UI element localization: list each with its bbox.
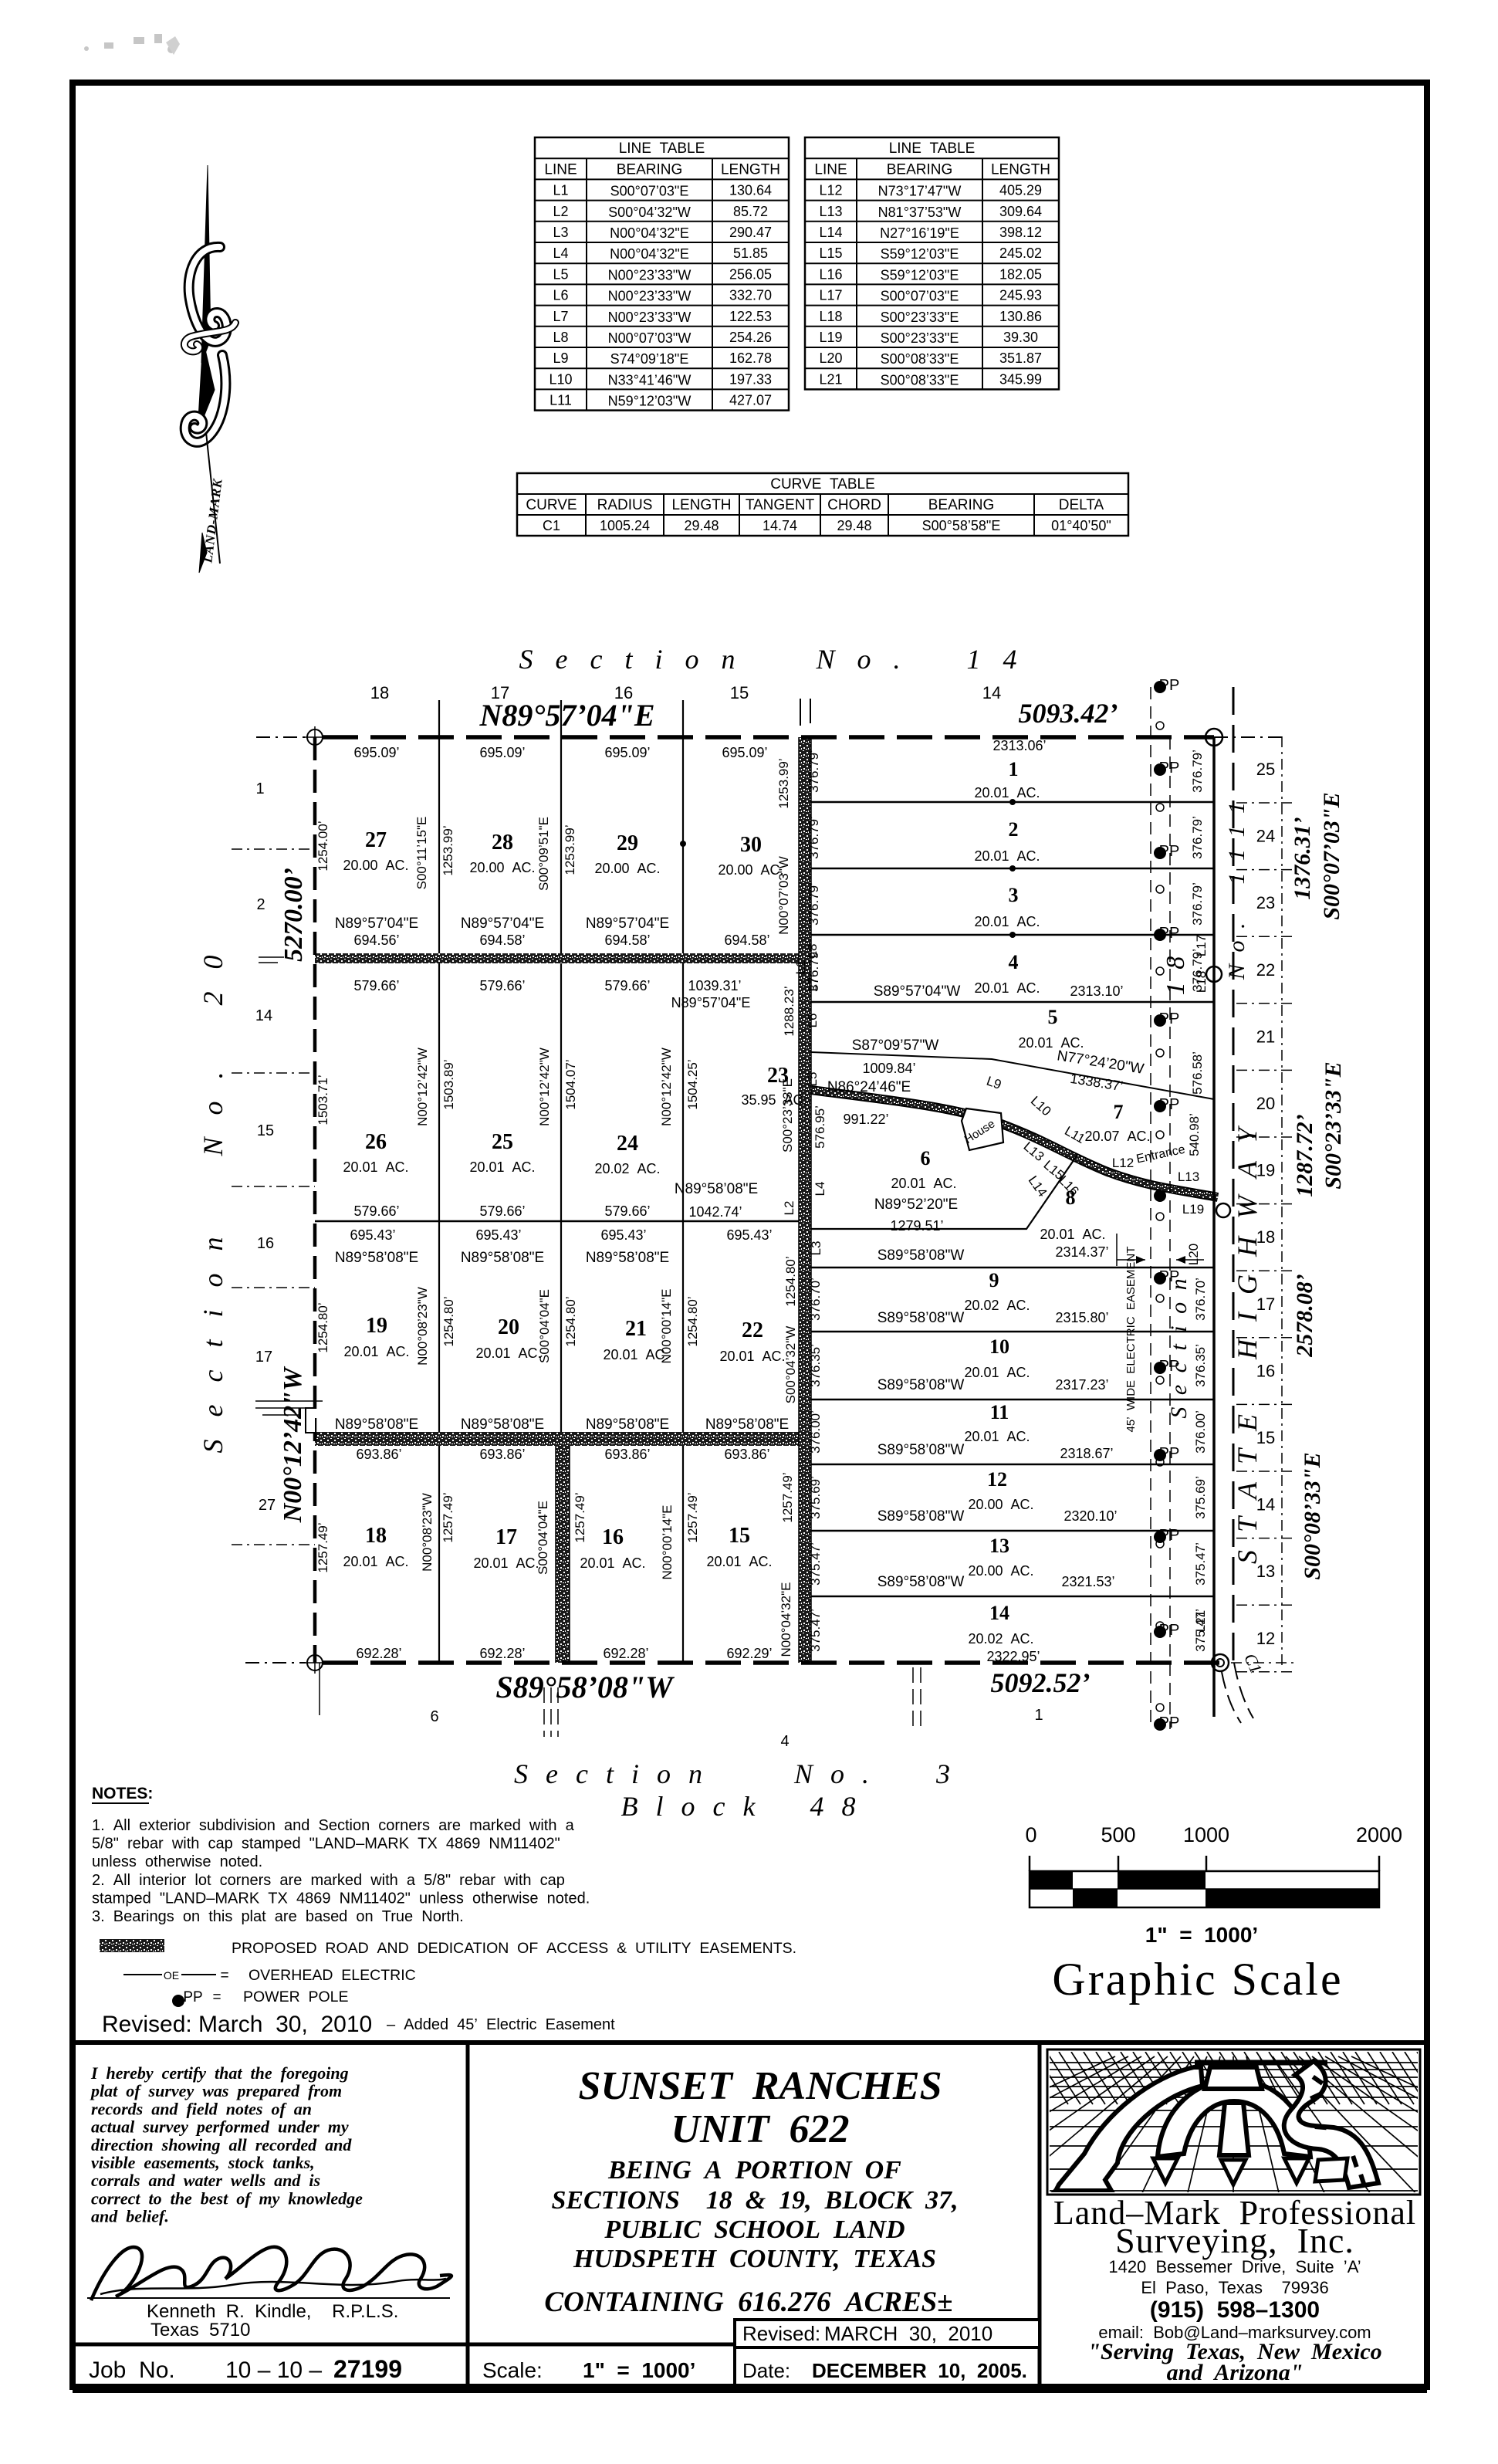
svg-text:3. Bearings on this plat: 3. Bearings on this plat are based on Tr…: [92, 1908, 464, 1925]
svg-text:S89°57’04"W: S89°57’04"W: [874, 983, 961, 1000]
svg-text:S89°58’08"W: S89°58’08"W: [877, 1310, 965, 1326]
svg-text:695.43’: 695.43’: [350, 1227, 395, 1243]
svg-text:corrals and water wells an: corrals and water wells and is: [91, 2171, 320, 2190]
svg-text:376.00’: 376.00’: [1193, 1410, 1208, 1454]
svg-text:579.66’: 579.66’: [353, 1203, 399, 1219]
svg-text:1376.31’: 1376.31’: [1290, 817, 1315, 900]
svg-text:20.01 AC.: 20.01 AC.: [719, 1349, 785, 1364]
svg-text:692.28’: 692.28’: [603, 1646, 648, 1661]
svg-text:692.28’: 692.28’: [479, 1646, 525, 1661]
svg-text:692.28’: 692.28’: [356, 1646, 401, 1661]
svg-text:694.58’: 694.58’: [604, 932, 650, 948]
svg-text:S00°07’03"E: S00°07’03"E: [1319, 792, 1344, 919]
svg-text:L1: L1: [553, 183, 568, 198]
svg-text:L20: L20: [819, 350, 842, 366]
svg-text:398.12: 398.12: [999, 225, 1042, 240]
svg-text:L5: L5: [553, 266, 568, 282]
svg-text:17: 17: [491, 683, 509, 702]
svg-text:20.01 AC.: 20.01 AC.: [964, 1429, 1030, 1444]
svg-text:N89°57’04"E: N89°57’04"E: [335, 916, 418, 932]
svg-text:12: 12: [1256, 1629, 1275, 1648]
svg-text:C1: C1: [543, 518, 560, 533]
svg-text:S e c t i o n N o .: S e c t i o n N o . 3: [514, 1758, 955, 1789]
svg-text:1257.49’: 1257.49’: [780, 1472, 795, 1522]
svg-text:376.70’: 376.70’: [1193, 1278, 1208, 1321]
svg-text:L4: L4: [553, 245, 568, 261]
svg-text:1504.07’: 1504.07’: [563, 1059, 578, 1109]
svg-text:500: 500: [1101, 1823, 1135, 1846]
svg-text:PP: PP: [1159, 677, 1180, 694]
svg-text:UNIT 622: UNIT 622: [671, 2107, 849, 2151]
svg-text:576.58’: 576.58’: [1190, 1051, 1205, 1095]
svg-text:PP: PP: [1159, 925, 1180, 942]
svg-text:695.09’: 695.09’: [604, 745, 650, 760]
svg-text:S59°12’03"E: S59°12’03"E: [881, 246, 959, 262]
svg-text:375.69’: 375.69’: [1193, 1476, 1208, 1519]
svg-text:1288.23’: 1288.23’: [782, 986, 796, 1036]
svg-text:24: 24: [1256, 827, 1275, 846]
svg-text:692.29’: 692.29’: [726, 1646, 772, 1661]
svg-text:N89°58’08"E: N89°58’08"E: [586, 1416, 669, 1433]
svg-text:1257.49’: 1257.49’: [573, 1492, 587, 1542]
svg-text:S89°58’08"W: S89°58’08"W: [877, 1377, 965, 1393]
svg-text:1: 1: [255, 780, 264, 797]
svg-text:1254.80’: 1254.80’: [563, 1296, 578, 1346]
svg-text:LENGTH: LENGTH: [991, 161, 1050, 178]
svg-text:39.30: 39.30: [1003, 330, 1038, 345]
svg-text:376.79’: 376.79’: [1190, 750, 1205, 793]
svg-text:S89°58’08"W: S89°58’08"W: [495, 1670, 675, 1704]
svg-text:245.02: 245.02: [999, 245, 1042, 261]
svg-text:OE: OE: [164, 1969, 179, 1982]
svg-text:L2: L2: [782, 1201, 796, 1216]
svg-text:stamped "LAND–MARK TX 4869: stamped "LAND–MARK TX 4869 NM11402" unle…: [92, 1890, 590, 1907]
svg-text:2314.37’: 2314.37’: [1055, 1244, 1108, 1260]
svg-text:plat of survey was prepare: plat of survey was prepared from: [90, 2081, 342, 2100]
svg-text:L6: L6: [805, 1014, 820, 1028]
svg-text:SECTIONS 18 & 19, BLOCK: SECTIONS 18 & 19, BLOCK 37,: [551, 2186, 958, 2215]
svg-text:579.66’: 579.66’: [353, 978, 399, 993]
svg-text:20.00 AC.: 20.00 AC.: [469, 860, 535, 875]
svg-text:17: 17: [495, 1525, 517, 1549]
svg-text:Scale:: Scale:: [482, 2358, 543, 2382]
svg-text:579.66’: 579.66’: [479, 978, 525, 993]
svg-text:N00°07’03"W: N00°07’03"W: [608, 330, 692, 346]
svg-text:1254.80’: 1254.80’: [316, 1302, 330, 1352]
svg-text:Job No.: Job No.: [89, 2357, 175, 2383]
svg-text:376.79’: 376.79’: [1190, 816, 1205, 859]
svg-text:L13: L13: [1178, 1169, 1199, 1184]
svg-text:N00°00’14"E: N00°00’14"E: [659, 1289, 674, 1364]
svg-text:15: 15: [729, 1524, 750, 1548]
svg-text:L17: L17: [819, 288, 842, 303]
svg-text:visible easements, stock ta: visible easements, stock tanks,: [91, 2153, 315, 2172]
svg-text:N73°17’47"W: N73°17’47"W: [878, 184, 962, 199]
svg-text:21: 21: [1256, 1027, 1275, 1046]
svg-text:S00°23’33"E: S00°23’33"E: [1320, 1061, 1346, 1189]
svg-text:N89°58’08"E: N89°58’08"E: [335, 1250, 418, 1266]
svg-text:L11: L11: [549, 393, 572, 408]
svg-text:2318.67’: 2318.67’: [1060, 1446, 1113, 1461]
svg-text:0: 0: [1025, 1823, 1036, 1846]
svg-text:85.72: 85.72: [733, 204, 768, 219]
svg-text:CONTAINING 616.276 ACRES±: CONTAINING 616.276 ACRES±: [544, 2286, 952, 2318]
svg-text:694.58’: 694.58’: [479, 932, 525, 948]
svg-text:BEING A PORTION OF: BEING A PORTION OF: [607, 2156, 901, 2185]
svg-text:=: =: [220, 1968, 228, 1984]
svg-text:14: 14: [982, 683, 1001, 702]
svg-text:1005.24: 1005.24: [600, 518, 650, 533]
svg-text:L12: L12: [819, 183, 842, 198]
svg-text:20.01 AC.: 20.01 AC.: [343, 1344, 409, 1359]
svg-text:S00°23’33"E: S00°23’33"E: [780, 1078, 795, 1152]
svg-text:254.26: 254.26: [729, 330, 772, 345]
svg-text:14.74: 14.74: [763, 518, 797, 533]
svg-text:N00°23’33"W: N00°23’33"W: [608, 267, 692, 283]
svg-text:345.99: 345.99: [999, 371, 1042, 387]
svg-text:2320.10’: 2320.10’: [1063, 1508, 1117, 1524]
svg-text:MARCH 30, 2010: MARCH 30, 2010: [824, 2322, 992, 2345]
svg-text:LINE: LINE: [814, 161, 847, 178]
svg-text:20.01 AC.: 20.01 AC.: [706, 1554, 772, 1569]
svg-text:9: 9: [989, 1269, 999, 1291]
svg-text:22: 22: [1256, 960, 1275, 980]
svg-text:2000: 2000: [1356, 1823, 1402, 1846]
svg-text:N00°07’03"W: N00°07’03"W: [776, 856, 791, 935]
svg-text:=: =: [212, 1989, 221, 2005]
svg-text:N00°08’23"W: N00°08’23"W: [420, 1493, 435, 1572]
svg-text:695.43’: 695.43’: [726, 1227, 772, 1243]
svg-text:19: 19: [366, 1314, 387, 1338]
svg-text:21: 21: [625, 1317, 647, 1341]
svg-text:DELTA: DELTA: [1059, 497, 1104, 513]
svg-text:N89°58’08"E: N89°58’08"E: [705, 1416, 789, 1433]
svg-text:(915) 598–1300: (915) 598–1300: [1150, 2297, 1320, 2323]
svg-text:376.79’: 376.79’: [806, 882, 821, 926]
svg-text:PP: PP: [1159, 1527, 1180, 1544]
svg-text:LENGTH: LENGTH: [721, 161, 780, 178]
svg-text:375.47’: 375.47’: [1193, 1542, 1208, 1586]
svg-text:20.01 AC.: 20.01 AC.: [343, 1159, 408, 1175]
svg-text:22: 22: [742, 1318, 763, 1342]
svg-text:N89°57’04"E: N89°57’04"E: [478, 698, 654, 733]
svg-text:427.07: 427.07: [729, 393, 772, 408]
svg-text:695.09’: 695.09’: [479, 745, 525, 760]
svg-text:2: 2: [1009, 818, 1019, 841]
svg-text:S00°04’04"E: S00°04’04"E: [536, 1501, 550, 1575]
svg-text:L7: L7: [553, 309, 568, 324]
svg-text:20.01 AC.: 20.01 AC.: [974, 914, 1040, 929]
svg-text:S89°58’08"W: S89°58’08"W: [877, 1442, 965, 1458]
svg-text:695.43’: 695.43’: [475, 1227, 521, 1243]
svg-text:S00°11’15"E: S00°11’15"E: [414, 817, 429, 890]
svg-text:S00°23’33"E: S00°23’33"E: [881, 310, 959, 325]
svg-text:1000: 1000: [1183, 1823, 1229, 1846]
svg-text:DECEMBER 10, 2005.: DECEMBER 10, 2005.: [812, 2359, 1027, 2382]
svg-text:N89°58’08"E: N89°58’08"E: [335, 1416, 418, 1433]
svg-text:L17: L17: [1194, 935, 1209, 956]
svg-text:LINE: LINE: [544, 161, 577, 178]
svg-text:20.01 AC.: 20.01 AC.: [580, 1555, 645, 1571]
svg-text:540.98’: 540.98’: [1187, 1113, 1202, 1156]
svg-text:20.01 AC.: 20.01 AC.: [891, 1176, 956, 1191]
svg-text:29.48: 29.48: [684, 518, 719, 533]
svg-text:20.01 AC.: 20.01 AC.: [974, 785, 1040, 800]
svg-text:1504.25’: 1504.25’: [685, 1059, 700, 1109]
svg-text:S e c t i o n N o . 2 0: S e c t i o n N o . 2 0: [198, 948, 228, 1454]
svg-text:L18: L18: [819, 309, 842, 324]
svg-text:579.66’: 579.66’: [604, 978, 650, 993]
svg-text:S87°09’57"W: S87°09’57"W: [852, 1037, 939, 1054]
svg-text:256.05: 256.05: [729, 266, 772, 282]
svg-text:25: 25: [492, 1130, 513, 1154]
svg-text:N89°57’04"E: N89°57’04"E: [461, 916, 544, 932]
svg-text:130.86: 130.86: [999, 309, 1042, 324]
svg-text:records and field notes of: records and field notes of an: [91, 2099, 312, 2118]
svg-text:1. All exterior subdivision: 1. All exterior subdivision and Section …: [92, 1817, 575, 1834]
svg-text:correct to the best of my: correct to the best of my knowledge: [91, 2188, 363, 2208]
svg-text:20.01 AC.: 20.01 AC.: [1040, 1227, 1105, 1242]
svg-text:L12: L12: [1112, 1156, 1134, 1170]
svg-text:695.43’: 695.43’: [600, 1227, 646, 1243]
svg-text:27: 27: [259, 1497, 276, 1514]
svg-text:2321.53’: 2321.53’: [1061, 1574, 1114, 1589]
svg-text:1279.51’: 1279.51’: [890, 1218, 943, 1234]
svg-text:16: 16: [614, 683, 633, 702]
svg-text:35.95 AC.: 35.95 AC.: [741, 1092, 806, 1108]
svg-text:405.29: 405.29: [999, 183, 1042, 198]
svg-text:N00°12’42"W: N00°12’42"W: [415, 1048, 430, 1126]
svg-text:N89°57’04"E: N89°57’04"E: [671, 995, 751, 1010]
svg-text:375.69’: 375.69’: [808, 1476, 823, 1519]
svg-text:695.09’: 695.09’: [353, 745, 399, 760]
svg-text:20.01 AC.: 20.01 AC.: [343, 1554, 408, 1569]
svg-text:695.09’: 695.09’: [722, 745, 767, 760]
svg-text:290.47: 290.47: [729, 225, 772, 240]
svg-text:N00°12’42"W: N00°12’42"W: [537, 1048, 552, 1126]
svg-text:14: 14: [255, 1007, 272, 1024]
svg-text:20.01 AC.: 20.01 AC.: [473, 1555, 539, 1571]
svg-text:579.66’: 579.66’: [479, 1203, 525, 1219]
svg-text:2. All interior lot corner: 2. All interior lot corners are marked w…: [92, 1872, 565, 1889]
svg-text:13: 13: [989, 1535, 1009, 1557]
svg-text:SUNSET RANCHES: SUNSET RANCHES: [578, 2064, 942, 2108]
svg-text:Revised: March 30, 2010: Revised: March 30, 2010: [102, 2012, 372, 2037]
svg-text:N00°00’14"E: N00°00’14"E: [660, 1505, 675, 1580]
svg-text:7: 7: [1114, 1101, 1124, 1123]
svg-text:18: 18: [370, 683, 389, 702]
svg-text:N86°24’46"E: N86°24’46"E: [827, 1079, 911, 1095]
svg-text:N89°52’20"E: N89°52’20"E: [874, 1196, 958, 1213]
svg-text:N33°41’46"W: N33°41’46"W: [608, 372, 692, 388]
svg-text:L19: L19: [1182, 1202, 1204, 1217]
svg-text:Surveying, Inc.: Surveying, Inc.: [1115, 2221, 1354, 2260]
svg-text:376.00’: 376.00’: [808, 1410, 823, 1454]
svg-text:27: 27: [365, 828, 387, 852]
svg-text:S00°08’33"E: S00°08’33"E: [881, 372, 959, 388]
svg-text:6: 6: [921, 1147, 931, 1169]
svg-text:1009.84’: 1009.84’: [862, 1061, 915, 1076]
svg-text:1253.99’: 1253.99’: [563, 824, 577, 875]
svg-text:TANGENT: TANGENT: [746, 497, 815, 513]
svg-text:51.85: 51.85: [733, 245, 768, 261]
svg-text:579.66’: 579.66’: [604, 1203, 650, 1219]
svg-text:PUBLIC SCHOOL LAND: PUBLIC SCHOOL LAND: [604, 2215, 905, 2244]
svg-text:1: 1: [1034, 1707, 1043, 1724]
svg-text:20.00 AC.: 20.00 AC.: [968, 1563, 1033, 1579]
svg-text:576.95’: 576.95’: [813, 1105, 827, 1149]
svg-text:L13: L13: [819, 204, 842, 219]
svg-text:309.64: 309.64: [999, 204, 1042, 219]
svg-text:PP: PP: [1159, 1010, 1180, 1027]
svg-text:376.35’: 376.35’: [1193, 1344, 1208, 1387]
svg-text:1257.49’: 1257.49’: [441, 1492, 455, 1542]
svg-text:N27°16’19"E: N27°16’19"E: [880, 225, 959, 241]
svg-text:20: 20: [1256, 1094, 1275, 1113]
svg-text:BEARING: BEARING: [928, 497, 995, 513]
svg-text:15: 15: [730, 683, 749, 702]
svg-text:3: 3: [1009, 884, 1019, 906]
svg-text:20.00 AC.: 20.00 AC.: [968, 1497, 1033, 1512]
svg-text:L19: L19: [819, 330, 842, 345]
svg-text:14: 14: [989, 1602, 1009, 1624]
svg-text:actual survey performed und: actual survey performed under my: [91, 2117, 349, 2137]
svg-text:5: 5: [1048, 1006, 1058, 1028]
svg-text:12: 12: [987, 1468, 1007, 1491]
svg-text:1420 Bessemer Drive, Suite: 1420 Bessemer Drive, Suite ’A’: [1108, 2257, 1361, 2276]
svg-text:6: 6: [430, 1708, 438, 1725]
svg-text:L21: L21: [819, 371, 842, 387]
svg-text:20: 20: [498, 1315, 519, 1339]
svg-text:Graphic Scale: Graphic Scale: [1052, 1954, 1343, 2005]
svg-text:1 8: 1 8: [1162, 953, 1190, 996]
svg-text:L9: L9: [553, 350, 568, 366]
svg-text:L2: L2: [553, 204, 568, 219]
svg-text:197.33: 197.33: [729, 371, 772, 387]
svg-text:375.47’: 375.47’: [808, 1609, 823, 1652]
svg-text:L16: L16: [819, 266, 842, 282]
svg-text:991.22’: 991.22’: [843, 1112, 888, 1127]
svg-text:20.01 AC.: 20.01 AC.: [469, 1159, 535, 1175]
svg-text:5/8" rebar with cap stampe: 5/8" rebar with cap stamped "LAND–MARK T…: [92, 1836, 560, 1853]
svg-text:16: 16: [602, 1525, 624, 1549]
svg-text:S89°58’08"W: S89°58’08"W: [877, 1247, 965, 1264]
svg-text:18: 18: [365, 1524, 387, 1548]
svg-text:20.01 AC.: 20.01 AC.: [964, 1365, 1030, 1380]
svg-text:PP: PP: [1159, 1096, 1180, 1113]
svg-text:245.93: 245.93: [999, 288, 1042, 303]
svg-text:L14: L14: [819, 225, 842, 240]
svg-text:LENGTH: LENGTH: [671, 497, 731, 513]
svg-text:S89°58’08"W: S89°58’08"W: [877, 1508, 965, 1525]
svg-text:S T A T E H I G H W A Y: S T A T E H I G H W A Y: [1232, 1122, 1263, 1564]
svg-text:L15: L15: [819, 245, 842, 261]
svg-text:376.70’: 376.70’: [808, 1278, 823, 1321]
svg-text:S00°04’04"E: S00°04’04"E: [537, 1289, 552, 1363]
svg-text:376.79’: 376.79’: [806, 750, 821, 793]
svg-text:1287.72’: 1287.72’: [1292, 1114, 1317, 1197]
svg-text:15: 15: [257, 1122, 274, 1139]
svg-text:L21: L21: [1193, 1610, 1208, 1632]
svg-text:45’ WIDE ELECTRIC EASEMENT: 45’ WIDE ELECTRIC EASEMENT: [1124, 1247, 1138, 1433]
svg-text:N00°04’32"E: N00°04’32"E: [610, 246, 689, 262]
svg-text:376.79’: 376.79’: [1190, 882, 1205, 926]
svg-text:N89°58’08"E: N89°58’08"E: [461, 1416, 544, 1433]
svg-text:L3: L3: [553, 225, 568, 240]
svg-text:4: 4: [780, 1733, 789, 1750]
svg-text:– Added 45’ Electric Easem: – Added 45’ Electric Easement: [387, 2016, 615, 2033]
svg-text:10 – 10 –: 10 – 10 –: [225, 2357, 322, 2383]
svg-text:El Paso, Texas 79936: El Paso, Texas 79936: [1141, 2278, 1328, 2297]
svg-text:1042.74’: 1042.74’: [688, 1204, 742, 1220]
svg-text:L4: L4: [813, 1182, 827, 1196]
svg-text:20.01 AC.: 20.01 AC.: [974, 848, 1040, 864]
svg-text:NOTES:: NOTES:: [92, 1785, 153, 1802]
svg-text:Revised:: Revised:: [742, 2322, 820, 2345]
svg-text:694.58’: 694.58’: [724, 932, 769, 948]
svg-text:N o . 1 1 1 1: N o . 1 1 1 1: [1224, 799, 1249, 980]
svg-text:N59°12’03"W: N59°12’03"W: [608, 394, 692, 409]
svg-text:PP: PP: [1159, 1714, 1180, 1731]
svg-text:20.01 AC.: 20.01 AC.: [974, 980, 1040, 996]
svg-text:PP: PP: [1159, 843, 1180, 860]
svg-text:N00°04’32"E: N00°04’32"E: [610, 225, 689, 241]
svg-text:1" = 1000’: 1" = 1000’: [583, 2358, 695, 2382]
svg-text:20.02 AC.: 20.02 AC.: [964, 1298, 1030, 1313]
svg-text:375.47’: 375.47’: [808, 1542, 823, 1586]
svg-text:1254.80’: 1254.80’: [685, 1296, 700, 1346]
svg-text:S e c t i o n: S e c t i o n: [1166, 1275, 1192, 1418]
svg-text:CURVE TABLE: CURVE TABLE: [770, 476, 875, 492]
svg-text:182.05: 182.05: [999, 266, 1042, 282]
svg-text:CHORD: CHORD: [827, 497, 881, 513]
svg-text:27199: 27199: [333, 2355, 402, 2383]
svg-text:POWER POLE: POWER POLE: [243, 1988, 349, 2005]
svg-text:L6: L6: [553, 288, 568, 303]
svg-text:PP: PP: [183, 1989, 202, 2005]
svg-text:1503.71’: 1503.71’: [316, 1075, 330, 1125]
svg-text:S89°58’08"W: S89°58’08"W: [877, 1574, 965, 1590]
svg-text:2322.95’: 2322.95’: [986, 1649, 1040, 1664]
svg-text:20.07 AC.: 20.07 AC.: [1084, 1129, 1150, 1144]
svg-text:and Arizona": and Arizona": [1167, 2360, 1304, 2385]
svg-text:351.87: 351.87: [999, 350, 1042, 366]
svg-text:693.86’: 693.86’: [724, 1447, 769, 1462]
svg-text:CURVE: CURVE: [526, 497, 577, 513]
svg-text:N00°08’23"W: N00°08’23"W: [415, 1287, 430, 1366]
svg-text:S00°58’58"E: S00°58’58"E: [922, 518, 1001, 533]
svg-text:N00°23’33"W: N00°23’33"W: [608, 310, 692, 325]
svg-text:694.56’: 694.56’: [353, 932, 399, 948]
svg-text:RADIUS: RADIUS: [597, 497, 653, 513]
svg-text:693.86’: 693.86’: [356, 1447, 401, 1462]
svg-text:20.00 AC.: 20.00 AC.: [343, 858, 408, 873]
svg-text:17: 17: [255, 1349, 272, 1366]
svg-text:1253.99’: 1253.99’: [441, 825, 455, 875]
svg-text:N00°04’32"E: N00°04’32"E: [779, 1582, 793, 1657]
svg-text:20.00 AC.: 20.00 AC.: [594, 861, 660, 876]
svg-text:OVERHEAD ELECTRIC: OVERHEAD ELECTRIC: [249, 1967, 416, 1984]
svg-text:L8: L8: [553, 330, 568, 345]
svg-text:LINE TABLE: LINE TABLE: [889, 140, 976, 157]
svg-text:I hereby certify that the: I hereby certify that the foregoing: [90, 2063, 349, 2083]
svg-text:23: 23: [1256, 893, 1275, 912]
svg-text:N89°58’08"E: N89°58’08"E: [675, 1181, 758, 1197]
svg-text:376.79’: 376.79’: [806, 949, 821, 992]
svg-text:20.02 AC.: 20.02 AC.: [968, 1631, 1033, 1647]
svg-text:N81°37’53"W: N81°37’53"W: [878, 205, 962, 220]
svg-text:24: 24: [617, 1132, 638, 1156]
